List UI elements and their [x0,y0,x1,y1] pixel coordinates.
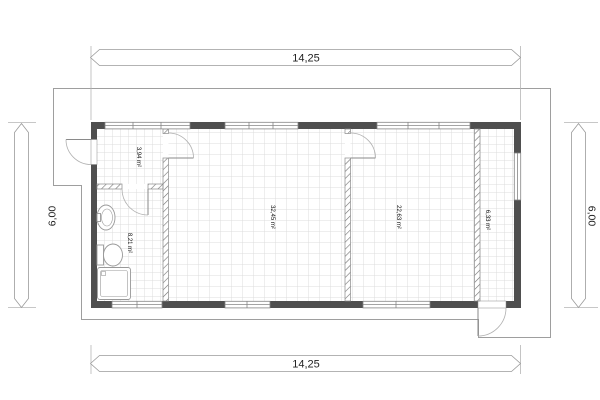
room-label-hall: 3,94 m² [135,147,141,167]
room-label-corridor: 6,33 m² [484,210,490,230]
shower-symbol [98,268,131,300]
windows-top [105,122,470,129]
dimension-right: 6,00 [572,124,598,308]
room-living-floor [169,129,346,301]
window [225,301,270,308]
back-door-opening [478,301,506,308]
back-door [478,308,506,336]
window [112,301,162,308]
dimension-left: 6,00 [15,124,59,308]
room-label-bathroom: 8,21 m² [126,233,132,253]
dimension-label-right: 6,00 [585,206,597,227]
partition-bathroom-right [148,184,163,189]
partition-hall-living [163,158,169,301]
entrance-door [66,140,91,165]
window [377,122,470,129]
floor-plan-page: 3,94 m² 8,21 m² 32,45 m² 22,63 m² 6,33 m… [0,0,600,400]
window [105,122,190,129]
dimension-arrow [572,124,586,308]
room-bedroom-floor [351,129,475,301]
room-label-bedroom: 22,63 m² [395,205,401,229]
entrance-door-opening [91,140,97,165]
room-label-living: 32,45 m² [269,205,275,229]
floor-plan-drawing: 3,94 m² 8,21 m² 32,45 m² 22,63 m² 6,33 m… [0,0,600,400]
toilet-symbol [97,244,123,266]
sink-symbol [97,205,115,230]
partition-hall-living-stub [163,129,169,134]
wall-right [514,122,521,308]
dimension-top: 14,25 [91,50,521,66]
dimension-label-bottom: 14,25 [292,358,320,370]
dimension-label-left: 6,00 [47,206,59,227]
window [363,301,430,308]
dimension-bottom: 14,25 [91,356,521,372]
window-right [514,153,520,200]
partition-living-bedroom [345,158,351,301]
partition-bedroom-corridor [475,129,481,301]
dimension-arrow [15,124,29,308]
room-floors [97,129,514,301]
partition-living-bedroom-stub [345,129,351,134]
dimension-label-top: 14,25 [292,52,320,64]
room-hall-floor [97,129,163,184]
partition-bathroom-left [97,184,122,189]
window [225,122,298,129]
